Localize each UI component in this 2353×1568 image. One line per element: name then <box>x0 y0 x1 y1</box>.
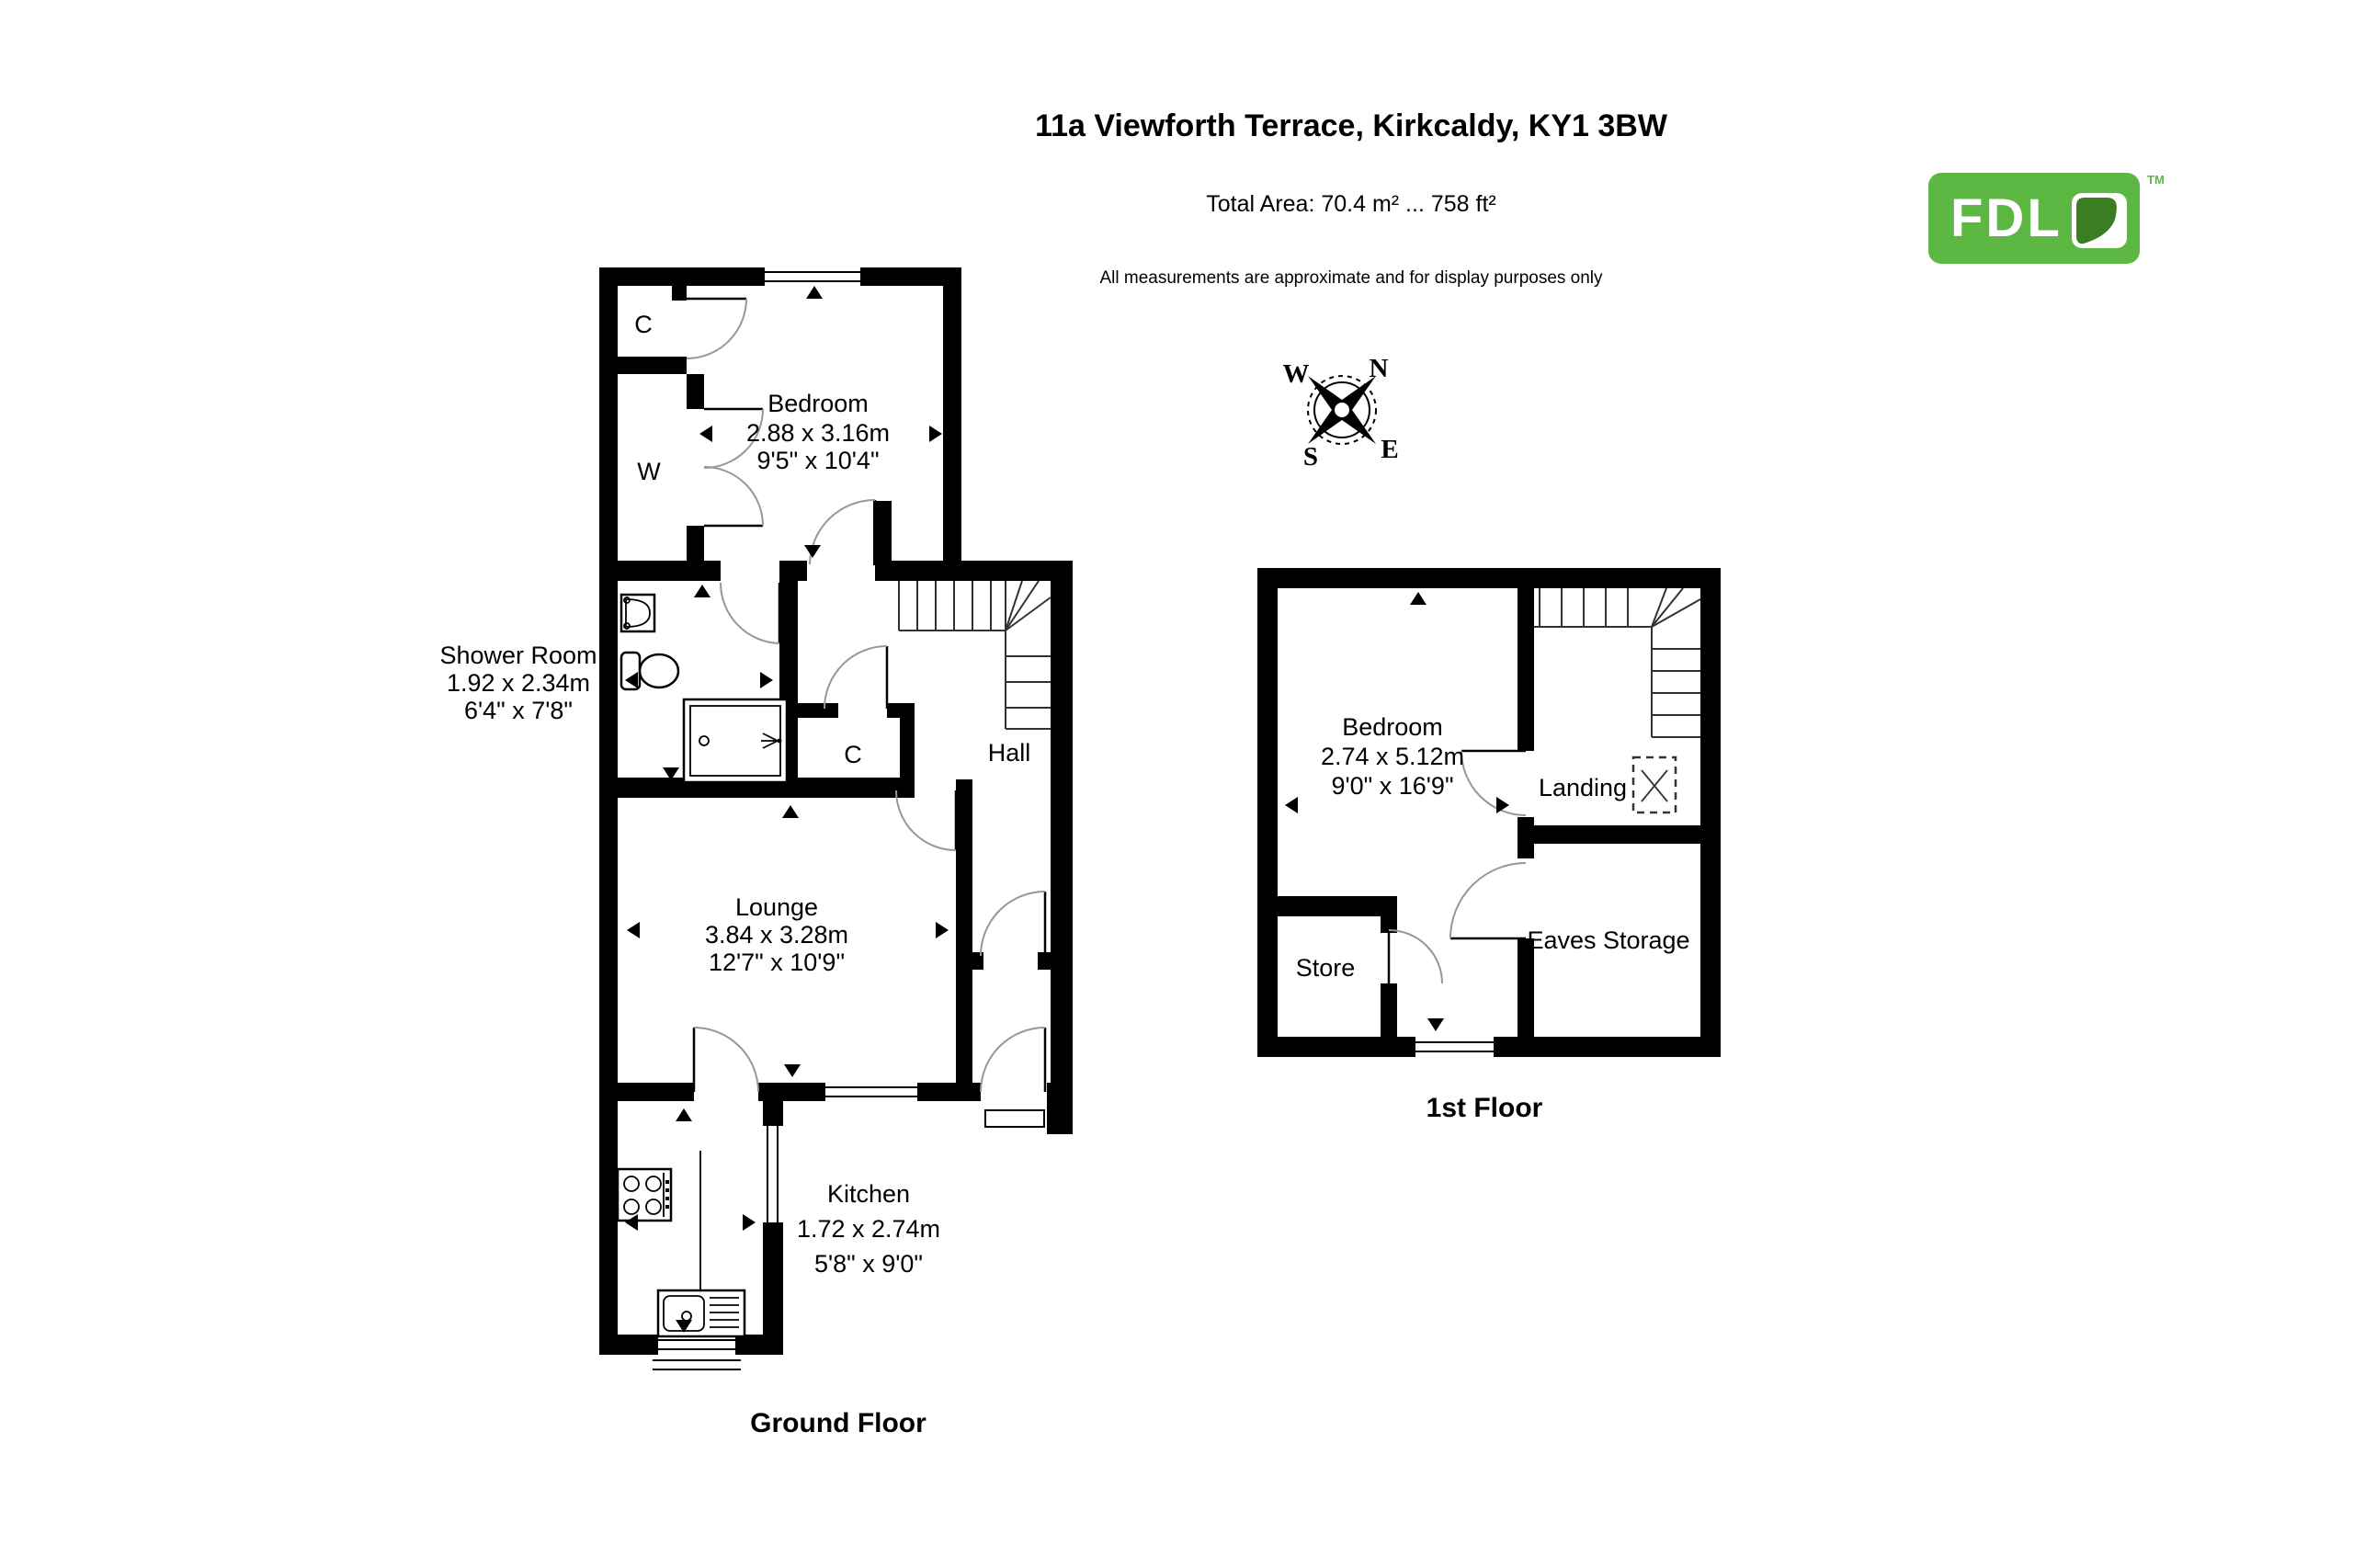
toilet-fixture <box>621 653 678 689</box>
compass-east: E <box>1381 435 1398 464</box>
hob-fixture <box>618 1169 671 1221</box>
lounge-window <box>825 1083 917 1101</box>
eaves-storage-door <box>1450 863 1526 938</box>
gf-shower-metric: 1.92 x 2.34m <box>447 669 590 697</box>
ff-store-label: Store <box>1296 954 1356 982</box>
gf-closet-label: C <box>634 311 653 338</box>
ff-bedroom-name: Bedroom <box>1342 713 1443 741</box>
kitchen-side-window <box>763 1126 783 1222</box>
ff-bedroom-door <box>1461 751 1526 815</box>
gf-shower-name: Shower Room <box>439 642 597 669</box>
kitchen-door <box>694 1028 758 1092</box>
gf-kitchen-name: Kitchen <box>827 1180 910 1208</box>
gf-hall-closet-label: C <box>844 741 862 768</box>
basin-fixture <box>621 595 654 631</box>
gf-kitchen-imperial: 5'8" x 9'0" <box>814 1250 923 1278</box>
first-floor-stairs <box>1534 588 1700 737</box>
ground-floor-stairs <box>899 581 1051 729</box>
first-floor-title: 1st Floor <box>1427 1093 1543 1123</box>
lounge-door <box>896 790 956 850</box>
gf-kitchen-metric: 1.72 x 2.74m <box>797 1215 940 1243</box>
first-floor-plan: Bedroom 2.74 x 5.12m 9'0" x 16'9" Landin… <box>1257 568 1721 1123</box>
gf-lounge-metric: 3.84 x 3.28m <box>705 921 848 949</box>
first-floor-labels: Bedroom 2.74 x 5.12m 9'0" x 16'9" Landin… <box>1296 713 1690 1123</box>
loft-hatch <box>1633 757 1676 812</box>
compass-west: W <box>1283 359 1310 389</box>
compass-north: N <box>1370 354 1389 383</box>
ff-bedroom-metric: 2.74 x 5.12m <box>1321 743 1464 770</box>
floorplan-drawing: N W S E <box>0 0 2353 1568</box>
gf-hall-label: Hall <box>988 739 1031 767</box>
ground-floor-labels: Bedroom 2.88 x 3.16m 9'5" x 10'4" C W Sh… <box>439 311 1030 1438</box>
sink-fixture <box>658 1290 745 1336</box>
ff-bedroom-imperial: 9'0" x 16'9" <box>1331 772 1453 800</box>
ff-eaves-label: Eaves Storage <box>1527 926 1689 954</box>
gf-lounge-imperial: 12'7" x 10'9" <box>709 949 845 976</box>
bedroom-window <box>765 267 860 286</box>
gf-bedroom-name: Bedroom <box>767 390 869 417</box>
compass-south: S <box>1303 442 1318 472</box>
shower-tray-fixture <box>684 699 787 782</box>
compass-rose: N W S E <box>1283 354 1399 472</box>
kitchen-window <box>653 1335 741 1369</box>
closet-door <box>687 299 746 358</box>
bedroom-door <box>810 500 875 564</box>
floorplan-page: 11a Viewforth Terrace, Kirkcaldy, KY1 3B… <box>0 0 2353 1568</box>
gf-lounge-name: Lounge <box>735 893 818 921</box>
gf-bedroom-imperial: 9'5" x 10'4" <box>756 447 879 474</box>
gf-wardrobe-label: W <box>637 458 661 485</box>
store-door <box>1389 930 1442 983</box>
front-door-step <box>985 1110 1044 1127</box>
shower-room-door <box>721 583 779 643</box>
ground-floor-plan: Bedroom 2.88 x 3.16m 9'5" x 10'4" C W Sh… <box>439 267 1073 1438</box>
first-floor-window <box>1415 1037 1494 1057</box>
front-door <box>981 1028 1045 1092</box>
ground-floor-title: Ground Floor <box>750 1408 926 1438</box>
hall-inner-door <box>981 892 1045 956</box>
ff-landing-label: Landing <box>1539 774 1627 801</box>
gf-shower-imperial: 6'4" x 7'8" <box>464 697 573 724</box>
gf-bedroom-metric: 2.88 x 3.16m <box>746 419 890 447</box>
hall-closet-door <box>824 646 887 709</box>
